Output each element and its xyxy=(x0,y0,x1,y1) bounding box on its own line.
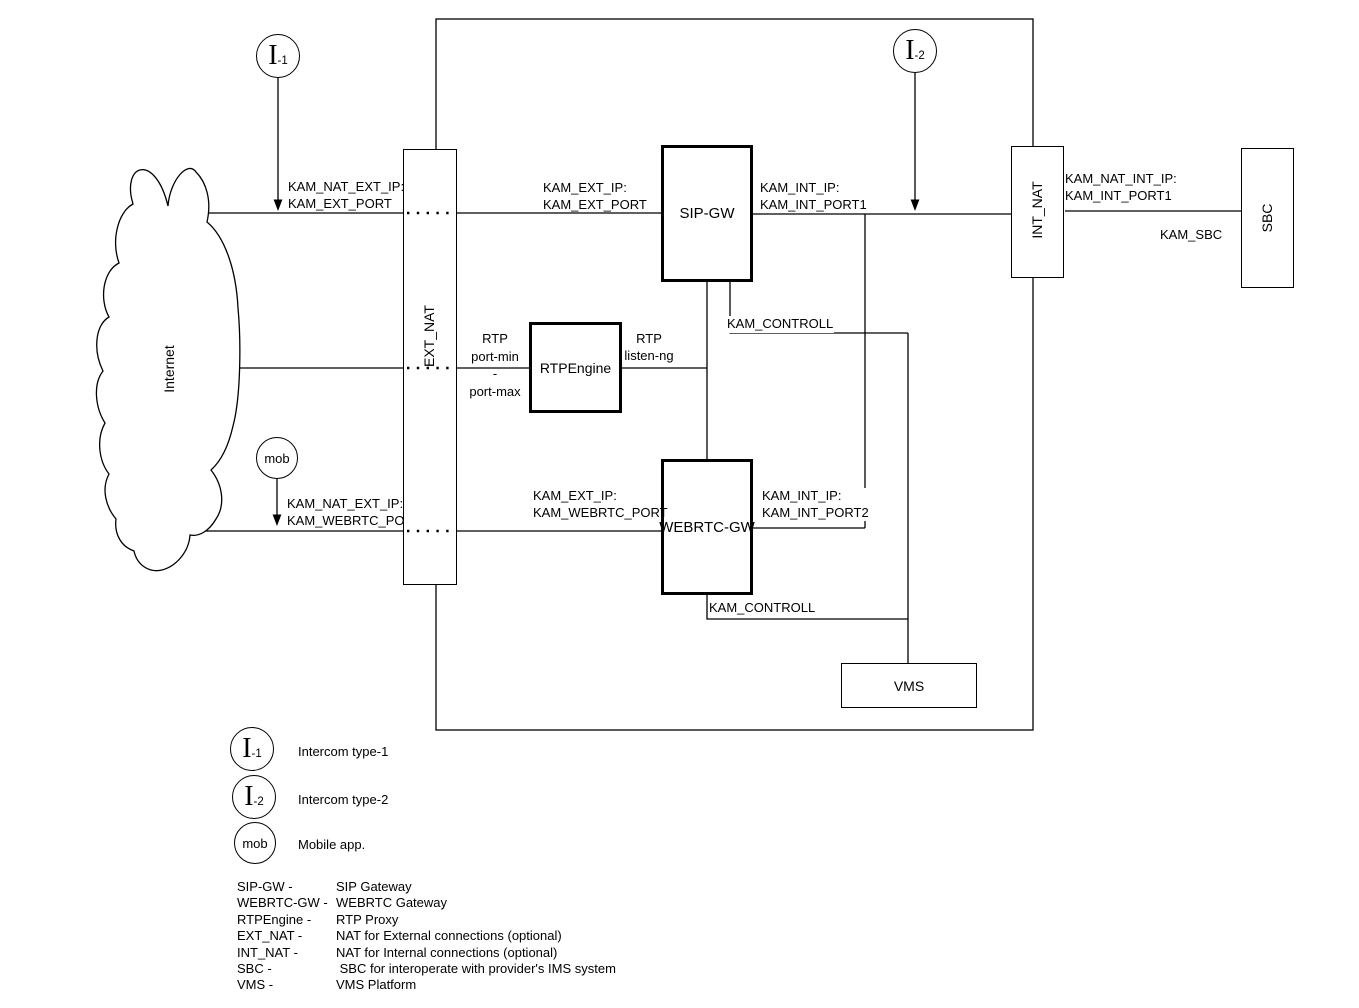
edge-label-line: KAM_WEBRTC_PORT xyxy=(287,513,422,530)
edge-label-line: KAM_WEBRTC_PORT xyxy=(533,505,668,522)
glossary-term: WEBRTC-GW - xyxy=(237,895,336,911)
edge-label-line: KAM_EXT_PORT xyxy=(288,196,404,213)
mobile-node: mob xyxy=(256,437,298,479)
edge-label-line: KAM_NAT_EXT_IP: xyxy=(288,179,404,196)
internet-cloud-label: Internet xyxy=(161,345,177,392)
edge-label-kam-nat-int-ip: KAM_NAT_INT_IP: KAM_INT_PORT1 xyxy=(1065,171,1177,204)
vms-box: VMS xyxy=(841,663,977,708)
legend-mobile-symbol: mob xyxy=(234,822,276,864)
int-nat-label: INT_NAT xyxy=(1029,181,1045,238)
edge-label-line: listen-ng xyxy=(619,348,679,365)
glossary-row: EXT_NAT - NAT for External connections (… xyxy=(237,928,616,944)
glossary-row: SIP-GW - SIP Gateway xyxy=(237,879,616,895)
edge-label-line: KAM_NAT_EXT_IP: xyxy=(287,496,422,513)
glossary-row: WEBRTC-GW - WEBRTC Gateway xyxy=(237,895,616,911)
intercom2-symbol-sub: -2 xyxy=(915,51,925,63)
arrow-mob-head xyxy=(273,515,282,527)
legend-intercom1-main: I xyxy=(242,735,251,763)
glossary-desc: NAT for External connections (optional) xyxy=(336,928,562,944)
arrow-i1-head xyxy=(274,200,283,212)
vms-label: VMS xyxy=(894,678,924,694)
glossary-row: INT_NAT - NAT for Internal connections (… xyxy=(237,945,616,961)
intercom1-node: I -1 xyxy=(256,34,300,78)
intercom2-symbol: I -2 xyxy=(905,37,925,65)
edge-label-kam-nat-ext-i1: KAM_NAT_EXT_IP: KAM_EXT_PORT xyxy=(288,179,404,212)
legend-intercom1-label: Intercom type-1 xyxy=(298,744,388,759)
legend-mobile-label: Mobile app. xyxy=(298,837,365,852)
glossary-desc: NAT for Internal connections (optional) xyxy=(336,945,557,961)
edge-label-line: KAM_INT_IP: xyxy=(762,488,869,505)
intercom1-symbol-main: I xyxy=(268,42,277,70)
legend-mobile-glyph: mob xyxy=(242,836,267,851)
rtpengine-box: RTPEngine xyxy=(529,322,622,413)
webrtc-gw-label: WEBRTC-GW xyxy=(659,519,755,536)
edge-label-line: KAM_EXT_PORT xyxy=(543,197,647,214)
edge-label-kam-sbc: KAM_SBC xyxy=(1160,227,1222,244)
legend-intercom2-symbol: I -2 xyxy=(232,775,276,819)
edge-label-kam-controll-webrtc: KAM_CONTROLL xyxy=(709,600,815,617)
intercom1-symbol: I -1 xyxy=(268,42,288,70)
legend-glossary: SIP-GW - SIP Gateway WEBRTC-GW - WEBRTC … xyxy=(237,879,616,994)
glossary-term: SBC - xyxy=(237,961,336,977)
mobile-node-label: mob xyxy=(264,451,289,466)
glossary-row: SBC - SBC for interoperate with provider… xyxy=(237,961,616,977)
edge-label-line: KAM_INT_IP: xyxy=(760,180,867,197)
edge-label-line: KAM_INT_PORT1 xyxy=(1065,188,1177,205)
intercom2-symbol-main: I xyxy=(905,37,914,65)
intercom2-node: I -2 xyxy=(893,29,937,73)
edge-label-rtp-ports: RTP port-min - port-max xyxy=(455,330,535,400)
edge-label-line: KAM_INT_PORT2 xyxy=(762,505,869,522)
glossary-row: RTPEngine - RTP Proxy xyxy=(237,912,616,928)
glossary-term: VMS - xyxy=(237,977,336,993)
glossary-desc: VMS Platform xyxy=(336,977,416,993)
glossary-row: VMS - VMS Platform xyxy=(237,977,616,993)
edge-label-line: KAM_INT_PORT1 xyxy=(760,197,867,214)
glossary-desc: SIP Gateway xyxy=(336,879,412,895)
edge-label-kam-int-ip-sip: KAM_INT_IP: KAM_INT_PORT1 xyxy=(760,180,867,213)
edge-label-line: port-max xyxy=(455,383,535,401)
legend-intercom2-sub: -2 xyxy=(254,797,264,809)
glossary-desc: WEBRTC Gateway xyxy=(336,895,447,911)
glossary-term: INT_NAT - xyxy=(237,945,336,961)
edge-label-line: RTP xyxy=(455,330,535,348)
glossary-desc: RTP Proxy xyxy=(336,912,398,928)
sbc-label: SBC xyxy=(1259,204,1275,233)
rtpengine-label: RTPEngine xyxy=(540,360,611,376)
webrtc-gw-box: WEBRTC-GW xyxy=(661,459,753,595)
edge-label-kam-int-ip-webrtc: KAM_INT_IP: KAM_INT_PORT2 xyxy=(761,488,870,521)
legend-intercom1-sub: -1 xyxy=(252,749,262,761)
edge-label-line: KAM_NAT_INT_IP: xyxy=(1065,171,1177,188)
legend-intercom1-symbol: I -1 xyxy=(230,727,274,771)
edge-label-kam-ext-ip-sip: KAM_EXT_IP: KAM_EXT_PORT xyxy=(543,180,647,213)
edge-label-line: - xyxy=(455,365,535,383)
sip-gw-label: SIP-GW xyxy=(680,205,735,222)
connection-lines xyxy=(180,19,1241,730)
sip-gw-box: SIP-GW xyxy=(661,145,753,282)
glossary-term: EXT_NAT - xyxy=(237,928,336,944)
ext-nat-box xyxy=(403,149,457,585)
legend-intercom2-glyph: I -2 xyxy=(244,783,264,811)
edge-label-kam-ext-ip-webrtc: KAM_EXT_IP: KAM_WEBRTC_PORT xyxy=(533,488,668,521)
edge-label-line: RTP xyxy=(619,331,679,348)
network-diagram-canvas: KAM_NAT_EXT_IP: KAM_EXT_PORT KAM_NAT_EXT… xyxy=(0,0,1359,1008)
legend-intercom1-glyph: I -1 xyxy=(242,735,262,763)
edge-label-rtp-listen: RTP listen-ng xyxy=(619,331,679,364)
arrow-i2-head xyxy=(911,200,920,212)
glossary-term: SIP-GW - xyxy=(237,879,336,895)
edge-label-line: port-min xyxy=(455,348,535,366)
legend-intercom2-main: I xyxy=(244,783,253,811)
legend-intercom2-label: Intercom type-2 xyxy=(298,792,388,807)
ext-nat-label: EXT_NAT xyxy=(421,305,437,367)
glossary-desc: SBC for interoperate with provider's IMS… xyxy=(336,961,616,977)
edge-label-line: KAM_EXT_IP: xyxy=(543,180,647,197)
edge-label-kam-controll-sip: KAM_CONTROLL xyxy=(726,316,834,333)
edge-label-kam-nat-ext-mob: KAM_NAT_EXT_IP: KAM_WEBRTC_PORT xyxy=(287,496,422,529)
edge-label-line: KAM_EXT_IP: xyxy=(533,488,668,505)
intercom1-symbol-sub: -1 xyxy=(278,56,288,68)
glossary-term: RTPEngine - xyxy=(237,912,336,928)
